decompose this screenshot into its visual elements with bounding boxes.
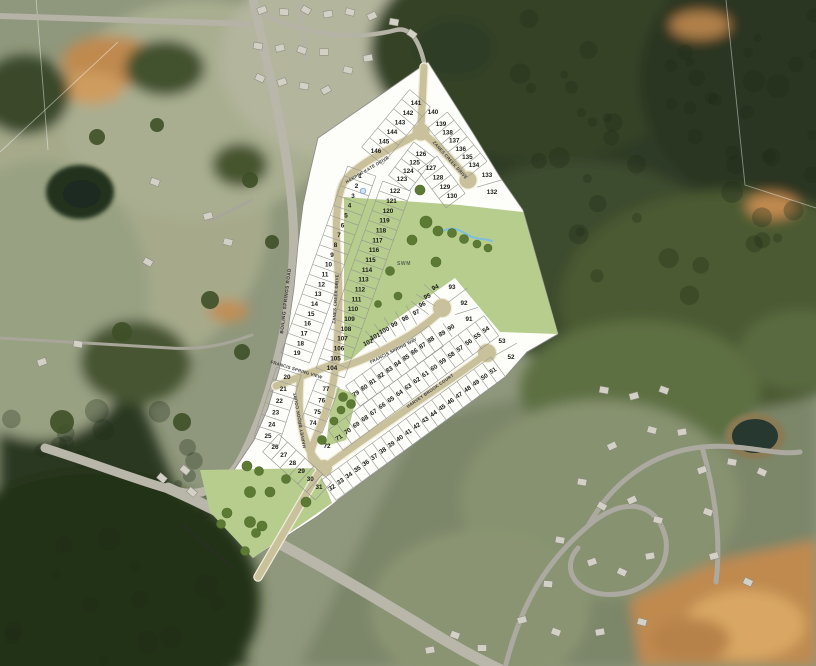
lot-number: 120 bbox=[383, 208, 394, 215]
tree-icon bbox=[301, 497, 311, 507]
lot-number: 22 bbox=[276, 398, 284, 405]
tree-icon bbox=[375, 301, 382, 308]
lot-number: 9 bbox=[330, 252, 334, 259]
lot-number: 30 bbox=[307, 476, 315, 483]
house bbox=[425, 646, 435, 654]
lot-number: 126 bbox=[416, 151, 427, 158]
lot-number: 13 bbox=[314, 291, 322, 298]
lot-number: 52 bbox=[507, 354, 515, 361]
lot-number: 132 bbox=[487, 189, 498, 196]
house bbox=[323, 10, 333, 18]
lot-number: 108 bbox=[341, 326, 352, 333]
lot-number: 129 bbox=[440, 184, 451, 191]
pond-water bbox=[63, 180, 101, 208]
field-tree bbox=[242, 172, 258, 188]
lot-number: 28 bbox=[289, 460, 297, 467]
tree-icon bbox=[330, 417, 338, 425]
lot-number: 145 bbox=[379, 139, 390, 146]
tree-icon bbox=[241, 547, 250, 556]
cul-de-sac bbox=[433, 299, 451, 317]
lot-number: 15 bbox=[307, 311, 315, 318]
lot-number: 6 bbox=[341, 222, 345, 229]
lot-number: 74 bbox=[309, 420, 317, 427]
lot-number: 111 bbox=[352, 296, 362, 303]
tree-icon bbox=[252, 529, 261, 538]
swm-area-label: SWM bbox=[397, 261, 411, 267]
house bbox=[577, 478, 587, 486]
lot-number: 11 bbox=[322, 272, 329, 279]
tree-icon bbox=[433, 226, 443, 236]
lot-number: 5 bbox=[344, 213, 348, 220]
lot-number: 93 bbox=[448, 284, 456, 291]
lot-number: 31 bbox=[315, 484, 323, 491]
tree-icon bbox=[420, 216, 432, 228]
lot-number: 134 bbox=[469, 162, 480, 169]
lot-number: 137 bbox=[449, 138, 460, 145]
house bbox=[543, 580, 553, 587]
lot-number: 118 bbox=[376, 228, 387, 235]
house bbox=[279, 8, 289, 15]
field-tree bbox=[89, 129, 105, 145]
tree-icon bbox=[394, 292, 402, 300]
house bbox=[253, 42, 263, 50]
lot-number: 21 bbox=[280, 386, 288, 393]
lot-number: 113 bbox=[358, 277, 369, 284]
lot-number: 136 bbox=[456, 146, 467, 153]
lot-number: 77 bbox=[322, 386, 330, 393]
site-plan-svg: 1234567891011121314151617181912212112011… bbox=[0, 0, 816, 666]
lot-number: 135 bbox=[462, 154, 473, 161]
lot-number: 104 bbox=[327, 365, 338, 372]
lot-number: 92 bbox=[460, 300, 468, 307]
lot-number: 119 bbox=[379, 218, 390, 225]
tree-icon bbox=[431, 257, 441, 267]
lot-number: 138 bbox=[442, 129, 453, 136]
house bbox=[599, 386, 609, 394]
house bbox=[677, 428, 687, 436]
tree-icon bbox=[386, 267, 395, 276]
field-tree bbox=[150, 118, 164, 132]
lot-number: 23 bbox=[272, 410, 280, 417]
lot-number: 114 bbox=[362, 267, 373, 274]
tree-icon bbox=[242, 461, 252, 471]
lot-number: 7 bbox=[337, 232, 341, 239]
tree-icon bbox=[217, 520, 226, 529]
blue-marker-icon bbox=[360, 188, 366, 194]
tree-icon bbox=[318, 436, 327, 445]
tree-icon bbox=[265, 487, 275, 497]
lot-number: 107 bbox=[337, 336, 348, 343]
tree-icon bbox=[337, 406, 345, 414]
lot-number: 10 bbox=[325, 262, 333, 269]
lot-number: 142 bbox=[403, 110, 414, 117]
lot-number: 112 bbox=[355, 287, 366, 294]
cul-de-sac bbox=[413, 124, 430, 141]
field-tree bbox=[234, 344, 250, 360]
field-tree bbox=[265, 235, 279, 249]
lot-number: 12 bbox=[318, 281, 326, 288]
lot-number: 29 bbox=[298, 468, 306, 475]
lot-number: 140 bbox=[428, 109, 439, 116]
field-tree bbox=[201, 291, 219, 309]
house bbox=[363, 54, 373, 62]
lot-number: 105 bbox=[330, 355, 341, 362]
lot-number: 4 bbox=[348, 203, 352, 210]
lot-number: 2 bbox=[355, 183, 359, 190]
lot-number: 146 bbox=[371, 148, 382, 155]
tree-icon bbox=[245, 487, 256, 498]
tree-icon bbox=[222, 508, 232, 518]
tree-icon bbox=[245, 517, 256, 528]
tree-icon bbox=[282, 475, 291, 484]
field-tree bbox=[112, 322, 132, 342]
lot-number: 8 bbox=[334, 242, 338, 249]
aerial-site-plan-map: 1234567891011121314151617181912212112011… bbox=[0, 0, 816, 666]
lot-number: 133 bbox=[482, 172, 493, 179]
house bbox=[595, 628, 605, 636]
tree-icon bbox=[407, 235, 417, 245]
tree-icon bbox=[347, 400, 356, 409]
lot-number: 18 bbox=[297, 340, 305, 347]
lot-number: 109 bbox=[344, 316, 355, 323]
lot-number: 20 bbox=[283, 374, 291, 381]
lot-number: 121 bbox=[386, 198, 397, 205]
lot-number: 115 bbox=[365, 257, 376, 264]
lot-number: 14 bbox=[311, 301, 319, 308]
field-tree bbox=[50, 410, 74, 434]
house bbox=[389, 18, 399, 26]
lot-number: 76 bbox=[318, 398, 326, 405]
lot-number: 3 bbox=[351, 193, 355, 200]
lot-number: 72 bbox=[323, 443, 331, 450]
lot-number: 26 bbox=[271, 444, 279, 451]
lot-number: 53 bbox=[498, 338, 506, 345]
lot-number: 128 bbox=[433, 175, 444, 182]
lot-number: 117 bbox=[372, 237, 383, 244]
lot-number: 124 bbox=[403, 168, 414, 175]
lot-number: 127 bbox=[426, 165, 437, 172]
lot-number: 122 bbox=[390, 188, 401, 195]
lot-number: 143 bbox=[395, 119, 406, 126]
cul-de-sac bbox=[316, 460, 332, 476]
lot-number: 17 bbox=[300, 331, 308, 338]
house bbox=[299, 82, 309, 90]
lot-number: 123 bbox=[397, 176, 408, 183]
tree-icon bbox=[415, 185, 425, 195]
lot-number: 110 bbox=[348, 306, 359, 313]
tree-icon bbox=[484, 244, 492, 252]
tree-icon bbox=[255, 467, 264, 476]
lot-number: 91 bbox=[465, 316, 473, 323]
lot-number: 116 bbox=[369, 247, 380, 254]
house bbox=[320, 49, 329, 56]
lot-number: 130 bbox=[447, 193, 458, 200]
house bbox=[645, 552, 655, 560]
house bbox=[73, 340, 83, 348]
lot-number: 141 bbox=[411, 100, 422, 107]
lot-number: 16 bbox=[304, 321, 312, 328]
lot-number: 106 bbox=[334, 346, 345, 353]
lot-number: 24 bbox=[268, 421, 276, 428]
tree-icon bbox=[473, 240, 481, 248]
house bbox=[727, 458, 737, 466]
lot-number: 139 bbox=[436, 121, 447, 128]
lot-number: 19 bbox=[293, 350, 301, 357]
house bbox=[478, 645, 487, 652]
lot-number: 75 bbox=[314, 409, 322, 416]
tree-icon bbox=[460, 235, 469, 244]
tree-icon bbox=[448, 229, 457, 238]
field-tree bbox=[173, 413, 191, 431]
house bbox=[555, 536, 565, 544]
tree-icon bbox=[339, 393, 348, 402]
lot-number: 125 bbox=[409, 160, 420, 167]
lot-number: 144 bbox=[387, 129, 398, 136]
lot-number: 27 bbox=[280, 452, 288, 459]
lot-number: 25 bbox=[264, 433, 272, 440]
